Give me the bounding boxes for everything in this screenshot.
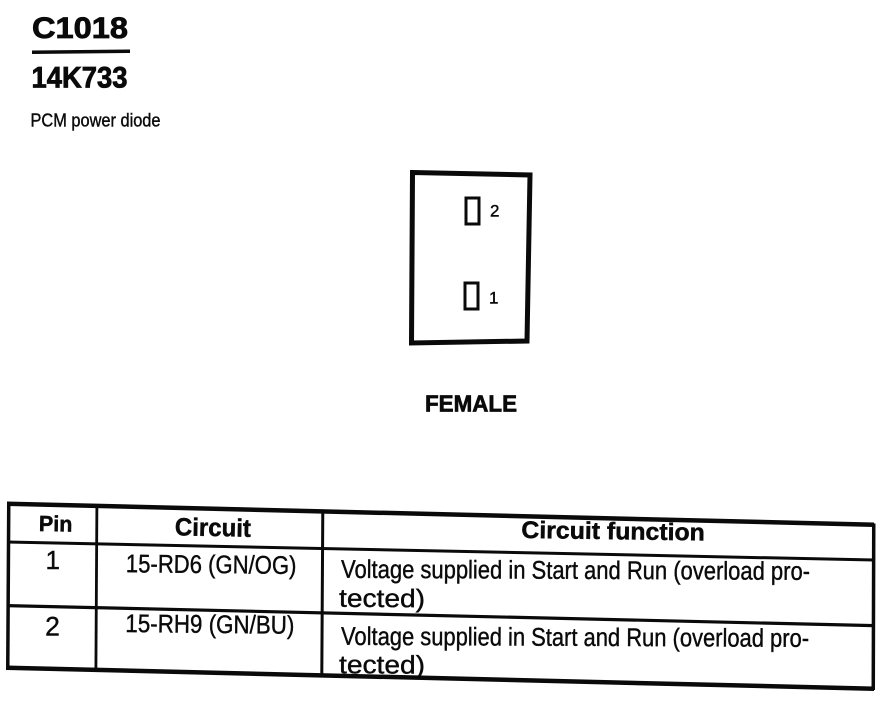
svg-text:tected): tected) <box>339 651 425 679</box>
svg-text:1: 1 <box>45 545 59 575</box>
svg-text:C1018: C1018 <box>32 12 128 45</box>
svg-text:Pin: Pin <box>39 511 73 537</box>
svg-text:2: 2 <box>490 202 499 221</box>
svg-text:tected): tected) <box>339 585 425 613</box>
svg-text:Voltage supplied in Start and: Voltage supplied in Start and Run (overl… <box>341 623 809 653</box>
svg-text:Circuit: Circuit <box>175 513 252 542</box>
svg-text:15-RD6 (GN/OG): 15-RD6 (GN/OG) <box>126 550 297 580</box>
svg-text:PCM power diode: PCM power diode <box>31 111 161 131</box>
svg-text:FEMALE: FEMALE <box>425 391 517 417</box>
svg-text:2: 2 <box>45 612 60 642</box>
svg-text:1: 1 <box>489 289 498 308</box>
svg-text:14K733: 14K733 <box>32 62 128 95</box>
svg-text:Circuit function: Circuit function <box>521 517 705 547</box>
svg-text:Voltage supplied in Start and: Voltage supplied in Start and Run (overl… <box>341 556 810 586</box>
svg-text:15-RH9 (GN/BU): 15-RH9 (GN/BU) <box>125 610 294 640</box>
